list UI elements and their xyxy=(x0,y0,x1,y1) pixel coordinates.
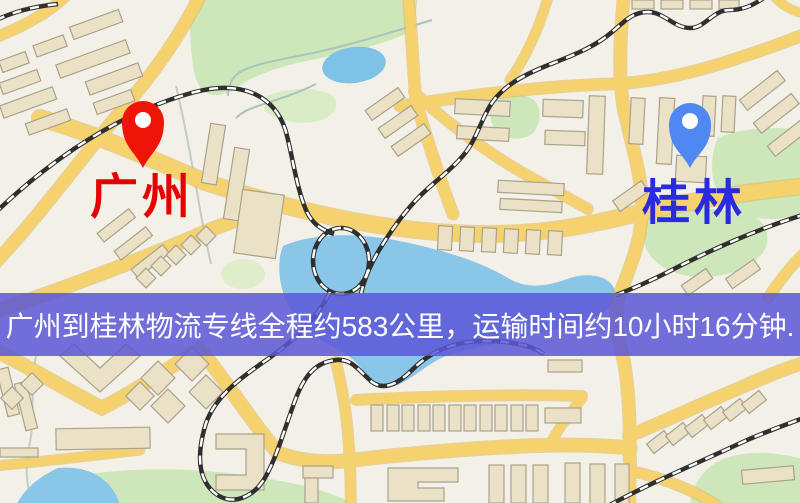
map-view: 广州 桂林 广州到桂林物流专线全程约583公里，运输时间约10小时16分钟. xyxy=(0,0,800,503)
map-canvas xyxy=(0,0,800,503)
route-info-text: 广州到桂林物流专线全程约583公里，运输时间约10小时16分钟. xyxy=(6,305,795,345)
destination-label: 桂林 xyxy=(642,180,746,228)
route-info-banner: 广州到桂林物流专线全程约583公里，运输时间约10小时16分钟. xyxy=(0,293,800,356)
origin-label: 广州 xyxy=(90,174,194,222)
